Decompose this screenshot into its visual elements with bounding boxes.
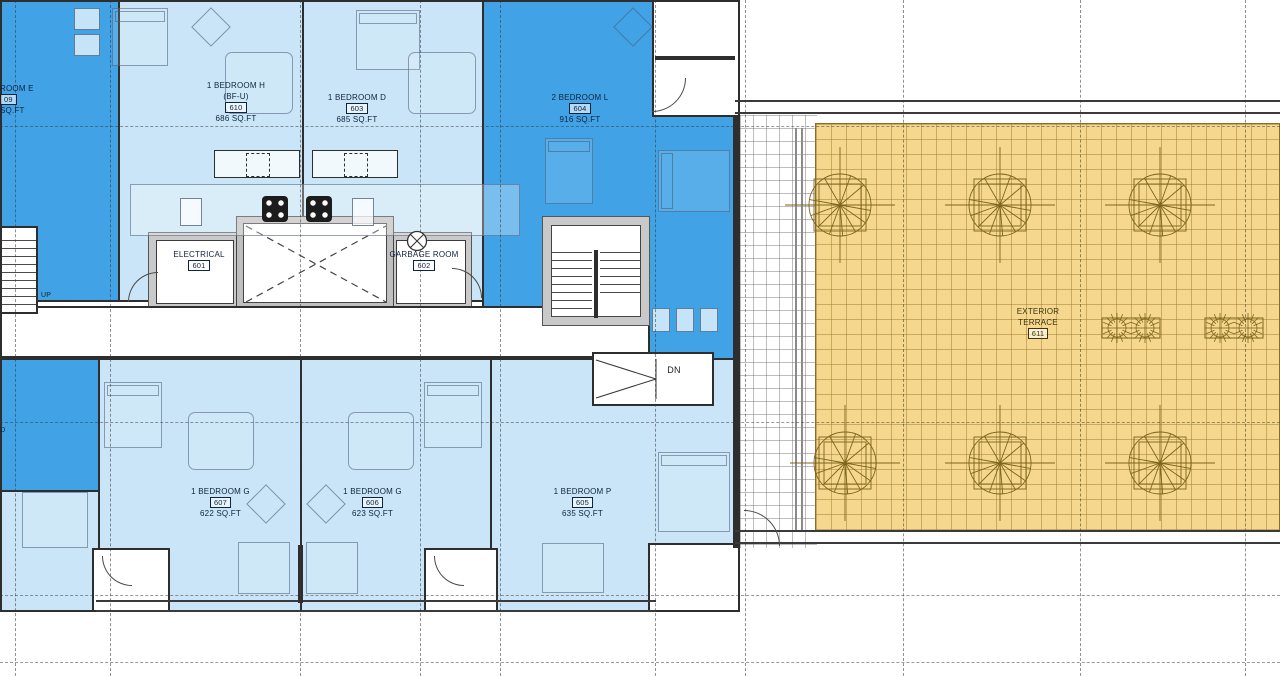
- room-number: 602: [413, 260, 434, 271]
- shrub-icon: [1130, 313, 1160, 343]
- kitchen-fixture-outline: [74, 8, 100, 30]
- unit-name: 1 BEDROOM G: [148, 486, 293, 497]
- shaft-x-icon: [244, 224, 388, 304]
- unit-name: 2 BEDROOM L: [505, 92, 655, 103]
- row-gridline: [0, 595, 1280, 596]
- sofa-outline: [22, 492, 88, 548]
- room-name: ELECTRICAL: [158, 249, 240, 260]
- dn-vestibule: [592, 352, 714, 406]
- unit-number: 606: [362, 497, 383, 508]
- tree-icon: [785, 147, 895, 263]
- pillow-outline: [548, 141, 590, 152]
- label-fragment-d: D: [0, 424, 14, 435]
- shrub-icon: [1233, 313, 1263, 343]
- unit-label-606: 1 BEDROOM G 606 623 SQ.FT: [300, 486, 445, 519]
- column-gridline: [1245, 0, 1246, 676]
- room-name: GARBAGE ROOM: [376, 249, 472, 260]
- tree-icon: [945, 147, 1055, 263]
- garbage-room-label: GARBAGE ROOM 602: [376, 249, 472, 271]
- row-gridline: [0, 662, 1280, 663]
- pillow-outline: [427, 385, 479, 396]
- stair-direction-icon: [594, 354, 712, 404]
- bed-outline: [112, 8, 168, 66]
- tree-icon: [1105, 147, 1215, 263]
- sink-outline: [180, 198, 202, 226]
- unit-area: 623 SQ.FT: [300, 508, 445, 519]
- bed-outline: [104, 382, 162, 448]
- unit-name: 1 BEDROOM H: [160, 80, 312, 91]
- floor-plan-canvas: ROOM E 09 SQ.FT 1 BEDROOM H (BF-U) 610 6…: [0, 0, 1280, 676]
- unit-label-609: ROOM E 09 SQ.FT: [0, 83, 40, 116]
- unit-name: ROOM E: [0, 83, 40, 94]
- room-name: EXTERIOR: [975, 306, 1101, 317]
- unit-name: 1 BEDROOM D: [282, 92, 432, 103]
- unit-number: 605: [572, 497, 593, 508]
- dn-annotation: DN: [658, 365, 690, 376]
- bed-outline: [658, 452, 730, 532]
- unit-name: 1 BEDROOM P: [510, 486, 655, 497]
- cooktop-icon: [262, 196, 288, 222]
- unit-name: 1 BEDROOM G: [300, 486, 445, 497]
- dining-table-outline: [188, 412, 254, 470]
- sofa-outline: [306, 542, 358, 594]
- column-gridline: [500, 0, 501, 676]
- unit-area: SQ.FT: [0, 105, 40, 116]
- pillow-outline: [107, 385, 159, 396]
- stair-treads-left-stairwell: [2, 240, 36, 310]
- unit-number: 607: [210, 497, 231, 508]
- shrub-icon: [1102, 313, 1132, 343]
- unit-area: 916 SQ.FT: [505, 114, 655, 125]
- stair-treads-right-flight: [600, 252, 640, 296]
- sofa-outline: [542, 543, 604, 593]
- room-name: TERRACE: [975, 317, 1101, 328]
- dining-table-outline: [348, 412, 414, 470]
- unit-number: 09: [0, 94, 17, 105]
- island-cooktop-outline: [246, 153, 270, 177]
- up-annotation: UP: [34, 290, 58, 301]
- row-gridline: [0, 422, 1280, 423]
- unit-label-607: 1 BEDROOM G 607 622 SQ.FT: [148, 486, 293, 519]
- bed-outline: [545, 138, 593, 204]
- bath-fixture-outline: [676, 308, 694, 332]
- shrub-icon: [1205, 313, 1235, 343]
- terrace-label: EXTERIOR TERRACE 611: [975, 306, 1101, 339]
- sofa-outline: [238, 542, 290, 594]
- unit-number: 603: [346, 103, 367, 114]
- electrical-room-label: ELECTRICAL 601: [158, 249, 240, 271]
- unit-number: 610: [225, 102, 246, 113]
- row-gridline: [0, 126, 1280, 127]
- unit-area: 635 SQ.FT: [510, 508, 655, 519]
- unit-area: 685 SQ.FT: [282, 114, 432, 125]
- room-number: 601: [188, 260, 209, 271]
- column-gridline: [655, 0, 656, 676]
- bed-outline: [424, 382, 482, 448]
- vestibule-wall: [655, 56, 735, 60]
- island-cooktop-outline: [344, 153, 368, 177]
- unit-number: 604: [569, 103, 590, 114]
- unit-label-603: 1 BEDROOM D 603 685 SQ.FT: [282, 92, 432, 125]
- column-gridline: [903, 0, 904, 676]
- cooktop-icon: [306, 196, 332, 222]
- unit-label-605: 1 BEDROOM P 605 635 SQ.FT: [510, 486, 655, 519]
- pillow-outline: [661, 455, 727, 466]
- bed-outline: [658, 150, 730, 212]
- balcony-parapet: [96, 600, 656, 612]
- stair-treads-left-flight: [552, 252, 592, 318]
- unit-area: 622 SQ.FT: [148, 508, 293, 519]
- pillow-outline: [115, 11, 165, 22]
- sink-outline: [352, 198, 374, 226]
- bath-fixture-outline: [700, 308, 718, 332]
- stair-center-wall: [594, 250, 598, 318]
- column-gridline: [745, 0, 746, 676]
- kitchen-fixture-outline: [74, 34, 100, 56]
- pillow-outline: [359, 13, 417, 24]
- room-number: 611: [1028, 328, 1049, 339]
- pillow-outline: [661, 153, 673, 209]
- column-gridline: [110, 0, 111, 676]
- unit-label-604: 2 BEDROOM L 604 916 SQ.FT: [505, 92, 655, 125]
